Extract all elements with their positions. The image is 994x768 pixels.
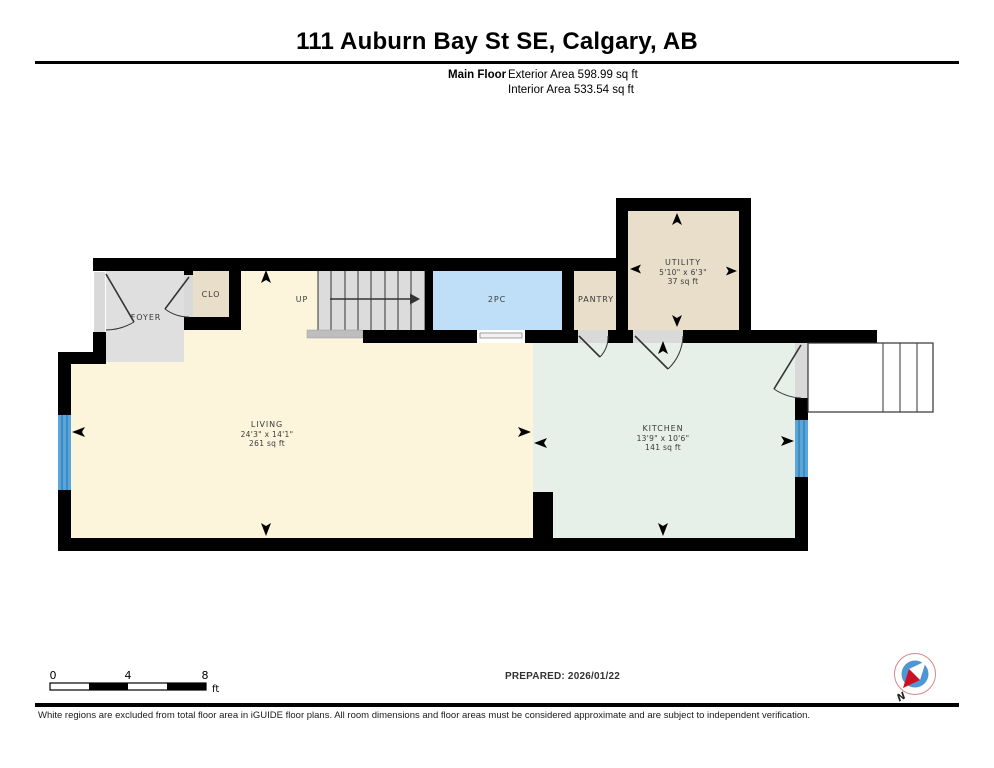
living-label: LIVING (251, 420, 283, 429)
exterior-steps (808, 343, 933, 412)
footer-divider (35, 703, 959, 707)
stairs-up-label: UP (296, 295, 308, 304)
prepared-date: PREPARED: 2026/01/22 (505, 671, 620, 682)
kitchen-window (795, 420, 808, 477)
living-dims: 24'3" x 14'1" (241, 430, 294, 439)
scale-tick-4: 4 (125, 669, 132, 682)
scale-tick-8: 8 (202, 669, 209, 682)
foyer-label: FOYER (131, 313, 161, 322)
scale-bar: 0 4 8 ft (50, 669, 220, 695)
closet-label: CLO (202, 290, 221, 299)
kitchen-dims: 13'9" x 10'6" (637, 434, 690, 443)
stair-landing-strip (307, 330, 363, 338)
living-window (58, 415, 71, 490)
utility-label: UTILITY (665, 258, 701, 267)
bath-label: 2PC (488, 295, 506, 304)
compass-icon: N (895, 654, 936, 705)
floorplan-drawing: FOYER CLO UP 2PC PANTRY UTILITY 5'10" x … (0, 0, 994, 768)
pantry-label: PANTRY (578, 295, 614, 304)
utility-dims: 5'10" x 6'3" (659, 268, 707, 277)
stairs (307, 271, 425, 338)
living-area: 261 sq ft (249, 439, 285, 448)
disclaimer-text: White regions are excluded from total fl… (38, 710, 968, 721)
bath-slider-door (477, 330, 525, 343)
utility-area: 37 sq ft (668, 277, 699, 286)
scale-tick-0: 0 (50, 669, 57, 682)
scale-unit: ft (212, 684, 219, 695)
floorplan-page: 111 Auburn Bay St SE, Calgary, AB Main F… (0, 0, 994, 768)
kitchen-label: KITCHEN (643, 424, 684, 433)
kitchen-area: 141 sq ft (645, 443, 681, 452)
